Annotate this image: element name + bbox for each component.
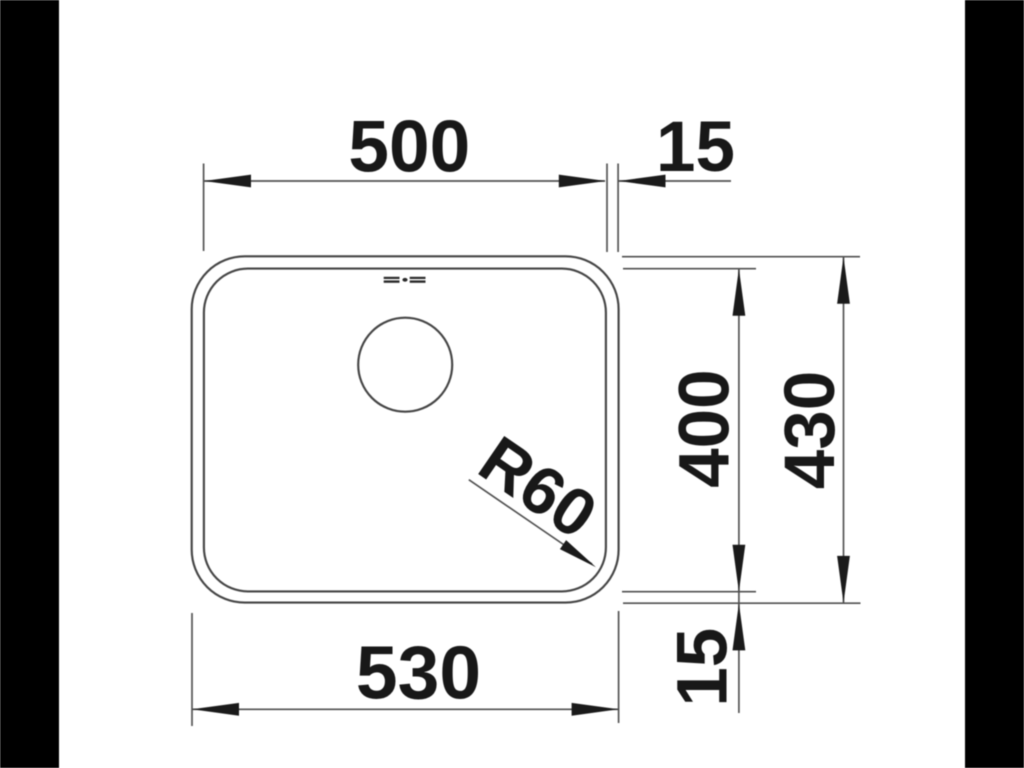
svg-text:430: 430 <box>771 371 850 489</box>
svg-text:530: 530 <box>356 631 481 715</box>
svg-text:500: 500 <box>348 107 470 188</box>
svg-text:400: 400 <box>666 369 745 487</box>
svg-text:15: 15 <box>663 628 742 707</box>
svg-text:R60: R60 <box>466 422 610 553</box>
svg-text:15: 15 <box>656 108 735 187</box>
